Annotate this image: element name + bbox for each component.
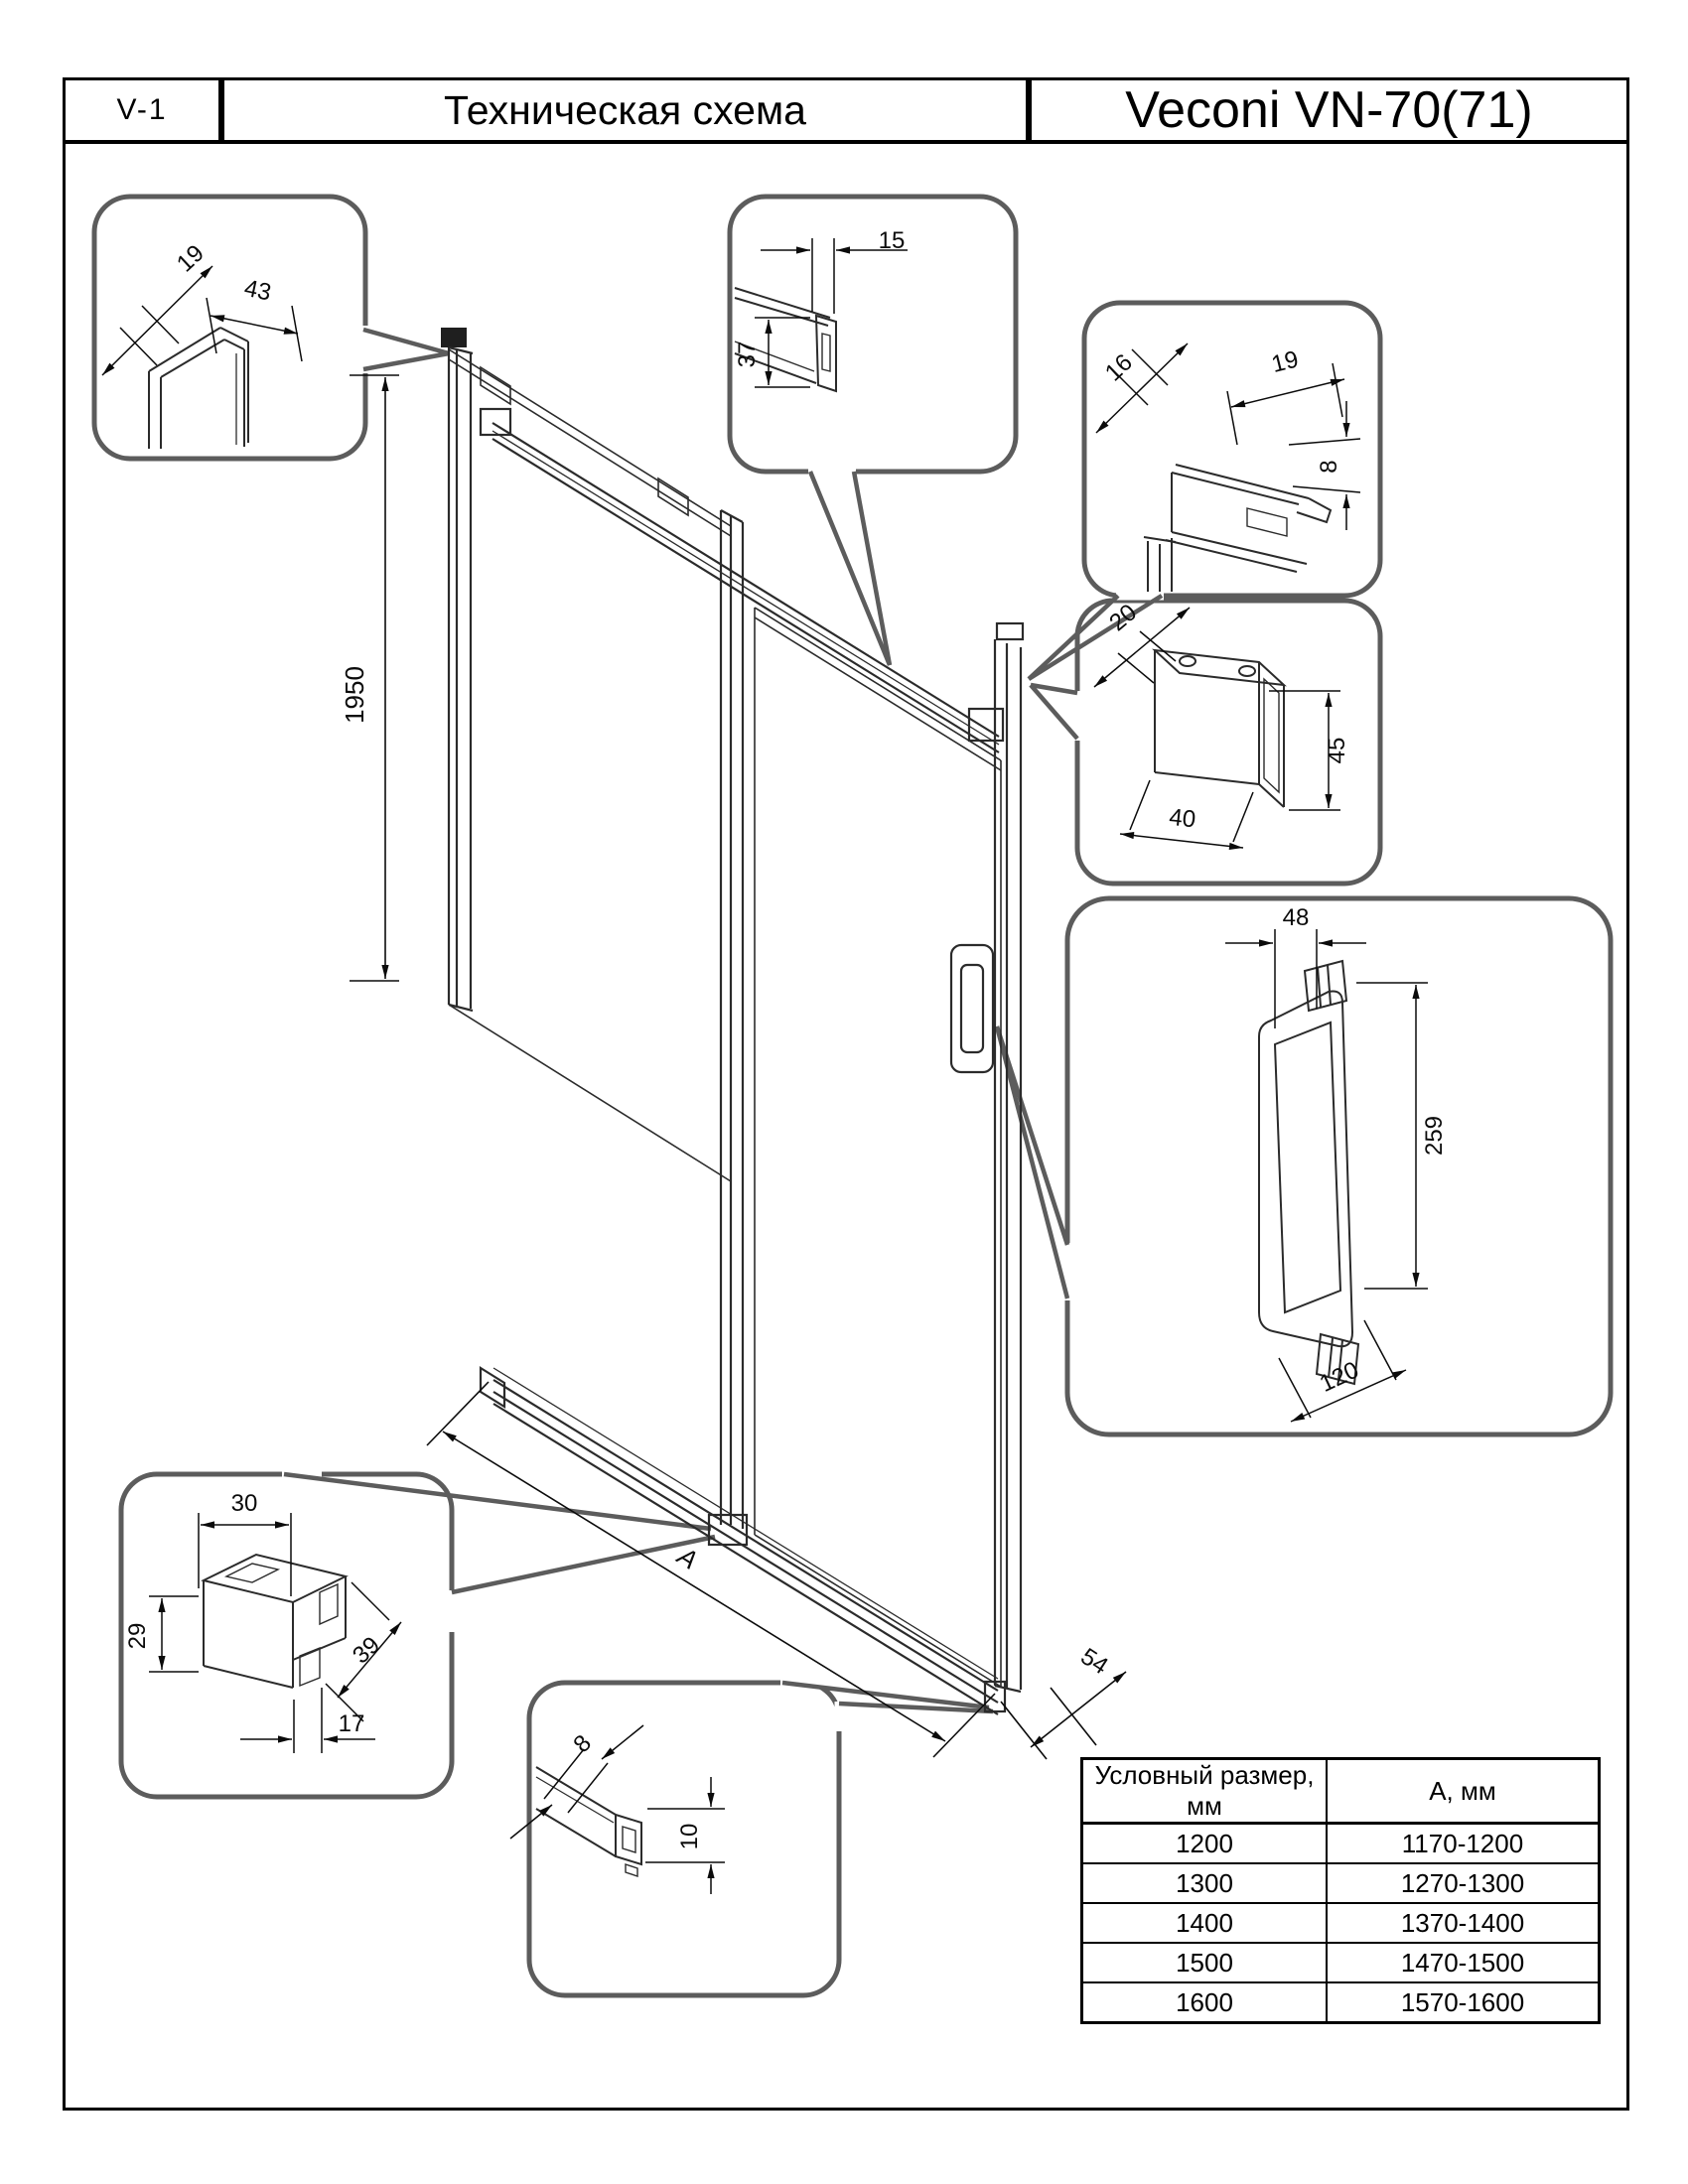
- dim-label-19: 19: [172, 240, 210, 278]
- dim-label-40: 40: [1168, 804, 1196, 834]
- nominal-size: 1300: [1082, 1863, 1328, 1903]
- dim-width-A: [427, 1382, 995, 1757]
- door-handle: [951, 945, 993, 1072]
- a-range: 1170-1200: [1327, 1824, 1600, 1864]
- dim-label-48: 48: [1283, 904, 1310, 931]
- dim-label-17: 17: [339, 1710, 365, 1737]
- dim-label-8b: 8: [568, 1729, 597, 1758]
- dim-label-16: 16: [1100, 349, 1138, 387]
- dim-label-259: 259: [1421, 1116, 1448, 1156]
- bubble-handle: [1067, 898, 1611, 1434]
- table-row: 1500 1470-1500: [1082, 1943, 1600, 1982]
- size-table: Условный размер, мм А, мм 1200 1170-1200…: [1080, 1757, 1601, 2024]
- table-row: 1300 1270-1300: [1082, 1863, 1600, 1903]
- table-row: 1200 1170-1200: [1082, 1824, 1600, 1864]
- detail-bracket-dims: [1094, 608, 1340, 848]
- center-post: [709, 510, 747, 1545]
- bubble-leaders: [284, 330, 1162, 1711]
- dim-label-8: 8: [1316, 460, 1342, 473]
- a-range: 1270-1300: [1327, 1863, 1600, 1903]
- table-row: 1400 1370-1400: [1082, 1903, 1600, 1943]
- wall-profile-left: [441, 328, 473, 1011]
- fixed-glass-panel: [449, 349, 731, 1181]
- a-range: 1570-1600: [1327, 1982, 1600, 2023]
- bubble-wall-profile: [94, 197, 365, 459]
- detail-roller: [204, 1555, 346, 1688]
- dim-label-1950: 1950: [340, 666, 369, 724]
- bubble-roller-block: [121, 1474, 452, 1797]
- detail-top-rail-dims: [755, 238, 908, 387]
- detail-seal-dims: [1096, 343, 1360, 530]
- nominal-size: 1600: [1082, 1982, 1328, 2023]
- size-table-header-row: Условный размер, мм А, мм: [1082, 1759, 1600, 1824]
- detail-top-rail: [735, 288, 836, 391]
- dim-label-15: 15: [879, 227, 906, 254]
- dim-label-10: 10: [676, 1824, 703, 1850]
- detail-wall-profile: [149, 328, 248, 449]
- table-row: 1600 1570-1600: [1082, 1982, 1600, 2023]
- size-table-col1-header: Условный размер, мм: [1082, 1759, 1328, 1824]
- dim-label-43: 43: [242, 275, 274, 307]
- bubble-seal-profile: [1084, 303, 1380, 596]
- detail-handle-dims: [1225, 929, 1428, 1422]
- detail-guide-dims: [510, 1725, 725, 1894]
- detail-seal-profile: [1144, 465, 1331, 592]
- dim-label-29: 29: [124, 1623, 151, 1650]
- dim-label-54: 54: [1076, 1643, 1113, 1680]
- nominal-size: 1200: [1082, 1824, 1328, 1864]
- detail-handle: [1259, 961, 1358, 1384]
- dim-label-19b: 19: [1269, 345, 1301, 378]
- detail-bracket: [1155, 650, 1284, 807]
- bubble-top-rail-profile: [730, 197, 1016, 472]
- a-range: 1470-1500: [1327, 1943, 1600, 1982]
- sliding-door-glass: [755, 608, 1001, 1687]
- dim-label-37: 37: [734, 341, 761, 368]
- dim-label-45: 45: [1324, 738, 1350, 764]
- dim-label-30: 30: [231, 1490, 258, 1517]
- nominal-size: 1400: [1082, 1903, 1328, 1943]
- wall-profile-right: [995, 623, 1023, 1692]
- dim-label-39: 39: [348, 1631, 385, 1669]
- detail-guide: [536, 1767, 641, 1876]
- a-range: 1370-1400: [1327, 1903, 1600, 1943]
- nominal-size: 1500: [1082, 1943, 1328, 1982]
- size-table-col2-header: А, мм: [1327, 1759, 1600, 1824]
